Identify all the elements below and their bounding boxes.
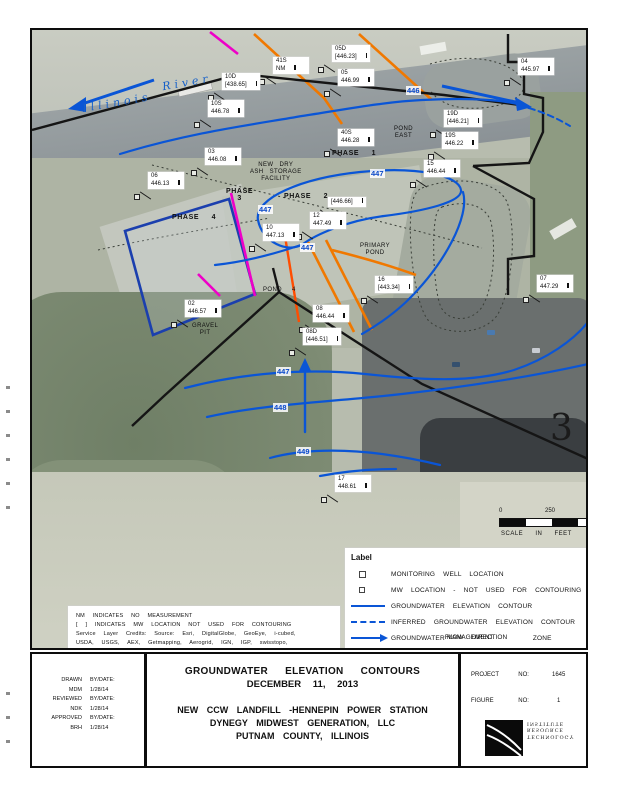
well-value: 447.13 bbox=[266, 232, 296, 240]
well-label: 17448.61 bbox=[335, 475, 371, 492]
legend-symbol bbox=[351, 571, 391, 578]
scale-tick: 0 bbox=[499, 508, 502, 514]
admin-row: MDM1/28/14 bbox=[32, 686, 144, 696]
well-label: 10D[438.65] bbox=[222, 73, 260, 90]
logo-text-line: TECHNOLOGY bbox=[527, 733, 575, 740]
well-id: 08 bbox=[316, 306, 346, 313]
margin-plot-stamp bbox=[6, 386, 10, 526]
project-cell: 1 bbox=[541, 688, 576, 714]
legend-item: MONITORING WELL LOCATION bbox=[345, 566, 588, 582]
well-label: 40S446.28 bbox=[338, 129, 374, 146]
contour-elevation-label: 447 bbox=[370, 169, 385, 178]
well-value: 446.78 bbox=[211, 108, 241, 116]
admin-cell: 1/28/14 bbox=[90, 705, 144, 715]
admin-cell: DRAWN bbox=[32, 676, 90, 686]
well-id: 19D bbox=[447, 111, 479, 118]
well-label: 06446.13 bbox=[148, 172, 184, 189]
well-value: 447.49 bbox=[313, 220, 343, 228]
figure-page: River Illinois 3 41SNM10D[438.65]10S446.… bbox=[0, 0, 618, 800]
well-value: [446.21] bbox=[447, 118, 479, 126]
well-value: [446.23] bbox=[335, 53, 367, 61]
admin-cell: APPROVED bbox=[32, 714, 90, 724]
contour-elevation-label: 447 bbox=[300, 243, 315, 252]
legend-item-text: GROUNDWATER ELEVATION CONTOUR bbox=[391, 603, 532, 610]
logo-text-line: INSTITUTE bbox=[527, 720, 575, 727]
well-id: 16 bbox=[378, 277, 410, 284]
place-label: POND bbox=[263, 287, 282, 294]
project-cell: 1645 bbox=[541, 662, 576, 688]
flow-arrow-icon bbox=[351, 637, 381, 639]
project-cell: NO: bbox=[518, 688, 541, 714]
well-id: 19S bbox=[445, 133, 475, 140]
well-label: 05D[446.23] bbox=[332, 45, 370, 62]
well-value: [443.34] bbox=[378, 284, 410, 292]
notes-line: NM INDICATES NO MEASUREMENT bbox=[76, 612, 340, 621]
well-label: 02446.57 bbox=[185, 300, 221, 317]
title-line: DECEMBER 11, 2013 bbox=[147, 679, 458, 690]
contour-elevation-label: 447 bbox=[258, 205, 273, 214]
admin-row: NDK1/28/14 bbox=[32, 705, 144, 715]
subtitle-line: DYNEGY MIDWEST GENERATION, LLC bbox=[147, 717, 458, 730]
well-label: 08D[446.51] bbox=[303, 328, 341, 345]
legend-overlay-management: MANAGEMENT bbox=[447, 634, 494, 641]
admin-row: APPROVEDBY/DATE: bbox=[32, 714, 144, 724]
notes-line: [ ] INDICATES MW LOCATION NOT USED FOR C… bbox=[76, 621, 340, 630]
well-id: 07 bbox=[540, 276, 570, 283]
title-heading: GROUNDWATER ELEVATION CONTOURSDECEMBER 1… bbox=[147, 666, 458, 690]
logo-arcs bbox=[485, 720, 523, 756]
admin-row: BRH1/28/14 bbox=[32, 724, 144, 734]
inferred-contour-line-icon bbox=[351, 621, 385, 623]
well-label: 19D[446.21] bbox=[444, 110, 482, 127]
admin-row: REVIEWEDBY/DATE: bbox=[32, 695, 144, 705]
map-canvas: River Illinois 3 41SNM10D[438.65]10S446.… bbox=[30, 28, 588, 650]
well-label: 10S446.78 bbox=[208, 100, 244, 117]
project-cell: FIGURE bbox=[471, 688, 518, 714]
project-block: PROJECTNO:1645FIGURENO:1 TECHNOLOGYRESOU… bbox=[459, 652, 588, 768]
place-label: POND EAST bbox=[394, 126, 413, 140]
legend-symbol bbox=[351, 605, 391, 607]
well-id: 15 bbox=[427, 161, 457, 168]
scale-bar-segments bbox=[499, 518, 588, 527]
project-row: PROJECTNO:1645 bbox=[461, 662, 586, 688]
well-id: 17 bbox=[338, 476, 368, 483]
admin-cell: BY/DATE: bbox=[90, 676, 144, 686]
well-id: 10D bbox=[225, 74, 257, 81]
admin-cell: BRH bbox=[32, 724, 90, 734]
well-label: 12447.49 bbox=[310, 212, 346, 229]
margin-plot-stamp bbox=[6, 692, 10, 762]
project-cell: NO: bbox=[518, 662, 541, 688]
well-id: 06 bbox=[151, 173, 181, 180]
well-value: NM bbox=[276, 65, 306, 73]
well-label: [446.66] bbox=[328, 197, 366, 207]
well-label: 10447.13 bbox=[263, 224, 299, 241]
admin-rows: DRAWNBY/DATE:MDM1/28/14REVIEWEDBY/DATE:N… bbox=[32, 676, 144, 733]
contour-elevation-label: 449 bbox=[296, 447, 311, 456]
well-id: 05D bbox=[335, 46, 367, 53]
admin-cell: MDM bbox=[32, 686, 90, 696]
notes-line: USDA, USGS, AEX, Getmapping, Aerogrid, I… bbox=[76, 639, 340, 648]
well-value: 446.08 bbox=[208, 156, 238, 164]
legend-item-text: MW LOCATION - NOT USED FOR CONTOURING bbox=[391, 587, 581, 594]
well-value: 446.44 bbox=[316, 313, 346, 321]
well-value: [446.51] bbox=[306, 336, 338, 344]
legend-item-text: INFERRED GROUNDWATER ELEVATION CONTOUR bbox=[391, 619, 575, 626]
logo-mark bbox=[485, 720, 523, 756]
phase-label: PHASE 4 bbox=[172, 214, 216, 221]
well-value: 448.61 bbox=[338, 483, 368, 491]
well-id: 04 bbox=[521, 59, 551, 66]
legend-overlapping-text: FLOW DIRECTIONMANAGEMENT bbox=[445, 634, 533, 642]
admin-cell: 1/28/14 bbox=[90, 724, 144, 734]
scale-bar: 0 250 500 SCALE IN FEET bbox=[487, 508, 588, 542]
well-value: 446.13 bbox=[151, 180, 181, 188]
admin-cell: REVIEWED bbox=[32, 695, 90, 705]
legend-item-text: MONITORING WELL LOCATION bbox=[391, 571, 504, 578]
well-value: 446.99 bbox=[341, 77, 371, 85]
subtitle-line: PUTNAM COUNTY, ILLINOIS bbox=[147, 730, 458, 743]
well-label: 07447.29 bbox=[537, 275, 573, 292]
title-line: GROUNDWATER ELEVATION CONTOURS bbox=[147, 666, 458, 677]
admin-block: DRAWNBY/DATE:MDM1/28/14REVIEWEDBY/DATE:N… bbox=[30, 652, 146, 768]
place-label: GRAVEL PIT bbox=[192, 323, 218, 337]
legend-item: MW LOCATION - NOT USED FOR CONTOURING bbox=[345, 582, 588, 598]
well-id: 41S bbox=[276, 58, 306, 65]
phase-label: PHASE 2 bbox=[284, 193, 328, 200]
notes-line: and the GIS User Community bbox=[76, 648, 340, 650]
legend-item: INFERRED GROUNDWATER ELEVATION CONTOUR bbox=[345, 614, 588, 630]
well-id: 40S bbox=[341, 130, 371, 137]
legend-symbol bbox=[351, 587, 391, 593]
legend-item: GROUNDWATER ELEVATION CONTOUR bbox=[345, 598, 588, 614]
well-label: 16[443.34] bbox=[375, 276, 413, 293]
mw-location-icon bbox=[359, 587, 365, 593]
scale-tick: 250 bbox=[545, 508, 555, 514]
legend: Label MONITORING WELL LOCATIONMW LOCATIO… bbox=[345, 548, 588, 650]
well-value: 446.44 bbox=[427, 168, 457, 176]
well-value: 446.28 bbox=[341, 137, 371, 145]
well-value: [446.66] bbox=[331, 198, 363, 206]
well-value: 446.57 bbox=[188, 308, 218, 316]
well-label: 05446.99 bbox=[338, 69, 374, 86]
well-label: 03446.08 bbox=[205, 148, 241, 165]
admin-cell: BY/DATE: bbox=[90, 695, 144, 705]
title-body: NEW CCW LANDFILL -HENNEPIN POWER STATION… bbox=[147, 704, 458, 743]
admin-cell: BY/DATE: bbox=[90, 714, 144, 724]
legend-rows: MONITORING WELL LOCATIONMW LOCATION - NO… bbox=[345, 566, 588, 646]
map-sheet-number: 3 bbox=[550, 408, 573, 449]
well-label: 41SNM bbox=[273, 57, 309, 74]
well-label: 15446.44 bbox=[424, 160, 460, 177]
contour-elevation-label: 448 bbox=[273, 403, 288, 412]
project-rows: PROJECTNO:1645FIGURENO:1 bbox=[461, 662, 586, 714]
contour-elevation-label: 446 bbox=[406, 86, 421, 95]
well-value: 447.29 bbox=[540, 283, 570, 291]
company-logo: TECHNOLOGYRESOURCEINSTITUTE bbox=[485, 720, 575, 756]
admin-cell: 1/28/14 bbox=[90, 686, 144, 696]
notes-line: Service Layer Credits: Source: Esri, Dig… bbox=[76, 630, 340, 639]
well-label: 19S446.22 bbox=[442, 132, 478, 149]
logo-text: TECHNOLOGYRESOURCEINSTITUTE bbox=[527, 720, 575, 740]
legend-item-text: GROUNDWATER bbox=[391, 635, 445, 642]
well-id: 05 bbox=[341, 70, 371, 77]
legend-symbol bbox=[351, 637, 391, 639]
notes-box: NM INDICATES NO MEASUREMENT[ ] INDICATES… bbox=[68, 606, 340, 650]
well-id: 10 bbox=[266, 225, 296, 232]
phase-label: PHASE 3 bbox=[226, 188, 253, 202]
subtitle-line: NEW CCW LANDFILL -HENNEPIN POWER STATION bbox=[147, 704, 458, 717]
scale-caption: SCALE IN FEET bbox=[501, 531, 572, 537]
title-block: GROUNDWATER ELEVATION CONTOURSDECEMBER 1… bbox=[145, 652, 460, 768]
legend-symbol bbox=[351, 621, 391, 623]
contour-elevation-label: 447 bbox=[276, 367, 291, 376]
well-id: 10S bbox=[211, 101, 241, 108]
well-id: 02 bbox=[188, 301, 218, 308]
admin-cell: NDK bbox=[32, 705, 90, 715]
place-label: PRIMARY POND bbox=[360, 243, 390, 257]
project-cell: PROJECT bbox=[471, 662, 518, 688]
well-value: [438.65] bbox=[225, 81, 257, 89]
well-label: 04445.97 bbox=[518, 58, 554, 75]
well-label: 08446.44 bbox=[313, 305, 349, 322]
legend-item-text-tail: ZONE bbox=[533, 635, 552, 642]
well-value: 445.97 bbox=[521, 66, 551, 74]
place-label: 4 bbox=[292, 287, 296, 294]
legend-item: GROUNDWATERFLOW DIRECTIONMANAGEMENTZONE bbox=[345, 630, 588, 646]
well-id: 12 bbox=[313, 213, 343, 220]
project-row: FIGURENO:1 bbox=[461, 688, 586, 714]
place-label: NEW DRY ASH STORAGE FACILITY bbox=[250, 162, 302, 183]
admin-row: DRAWNBY/DATE: bbox=[32, 676, 144, 686]
well-id: 03 bbox=[208, 149, 238, 156]
well-id: 08D bbox=[306, 329, 338, 336]
legend-header: Label bbox=[351, 553, 588, 562]
monitoring-well-icon bbox=[359, 571, 366, 578]
contour-line-icon bbox=[351, 605, 385, 607]
well-value: 446.22 bbox=[445, 140, 475, 148]
